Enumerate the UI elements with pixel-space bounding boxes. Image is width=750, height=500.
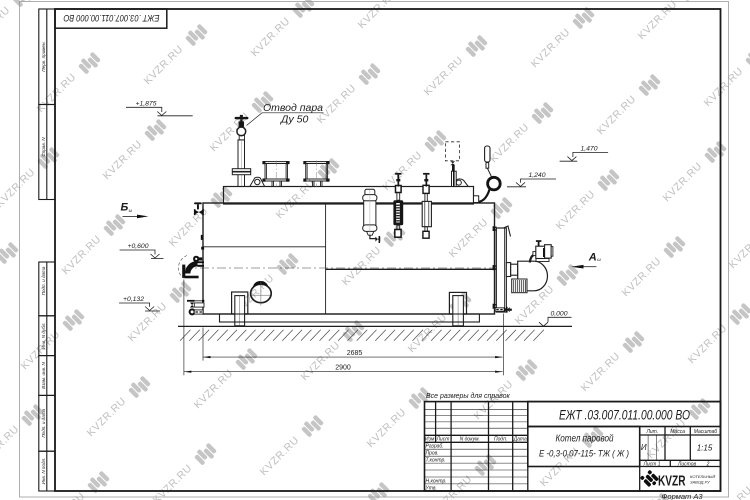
svg-text:Формат А3: Формат А3 bbox=[661, 492, 703, 500]
svg-text:Котел паровой: Котел паровой bbox=[556, 434, 614, 445]
svg-text:2: 2 bbox=[706, 461, 710, 467]
svg-text:Лист 1: Лист 1 bbox=[642, 461, 660, 467]
svg-text:ЕЖТ .03.007.011.00.000 ВО: ЕЖТ .03.007.011.00.000 ВО bbox=[64, 13, 160, 23]
svg-text:Подп.: Подп. bbox=[494, 437, 507, 443]
svg-text:Перв. примен.: Перв. примен. bbox=[41, 41, 46, 72]
svg-text:Лист: Лист bbox=[436, 437, 450, 443]
svg-text:Листов: Листов bbox=[677, 461, 697, 467]
svg-text:ω: ω bbox=[597, 257, 601, 262]
svg-text:1,240: 1,240 bbox=[528, 172, 545, 179]
svg-text:N докум.: N докум. bbox=[460, 437, 480, 443]
svg-text:А: А bbox=[588, 251, 597, 263]
svg-text:Дата: Дата bbox=[513, 437, 527, 443]
svg-text:KVZR.RU: KVZR.RU bbox=[0, 4, 13, 48]
svg-text:+0,600: +0,600 bbox=[128, 243, 149, 250]
svg-text:Б: Б bbox=[121, 202, 129, 214]
svg-text:Т.контр.: Т.контр. bbox=[426, 458, 446, 464]
svg-text:Пров.: Пров. bbox=[426, 451, 439, 457]
svg-text:Справ. N: Справ. N bbox=[41, 137, 46, 157]
svg-text:Масса: Масса bbox=[670, 429, 685, 435]
svg-text:+0,132: +0,132 bbox=[123, 296, 144, 303]
svg-text:+1,875: +1,875 bbox=[136, 100, 157, 107]
svg-text:Взам. инв. N: Взам. инв. N bbox=[41, 361, 46, 388]
svg-text:Е -0,3-0,07-115- ТЖ ( Ж ): Е -0,3-0,07-115- ТЖ ( Ж ) bbox=[539, 449, 629, 460]
svg-text:Инв. N подл.: Инв. N подл. bbox=[41, 458, 46, 485]
svg-text:Лит.: Лит. bbox=[645, 429, 658, 435]
svg-text:ω: ω bbox=[129, 208, 133, 213]
svg-text:0,000: 0,000 bbox=[550, 310, 567, 317]
svg-text:KVZR.RU: KVZR.RU bbox=[0, 166, 38, 210]
svg-text:1,470: 1,470 bbox=[580, 145, 597, 152]
svg-text:Изм: Изм bbox=[425, 437, 435, 443]
svg-text:Отвод пара: Отвод пара bbox=[263, 102, 323, 114]
svg-text:Подп. и дата: Подп. и дата bbox=[41, 408, 46, 437]
svg-text:Н.контр.: Н.контр. bbox=[426, 478, 447, 484]
svg-text:2685: 2685 bbox=[347, 350, 363, 357]
svg-text:KVZR.RU: KVZR.RU bbox=[0, 423, 22, 467]
svg-text:Инв. N дубл.: Инв. N дубл. bbox=[41, 322, 46, 349]
svg-text:ЕЖТ .03.007.011.00.000 ВО: ЕЖТ .03.007.011.00.000 ВО bbox=[559, 408, 690, 423]
svg-text:Масштаб: Масштаб bbox=[694, 429, 718, 435]
svg-text:Утв.: Утв. bbox=[426, 485, 437, 491]
svg-text:KVZR.RU: KVZR.RU bbox=[727, 227, 750, 271]
svg-text:Все размеры для справок: Все размеры для справок bbox=[426, 392, 511, 400]
svg-text:2900: 2900 bbox=[335, 365, 351, 372]
svg-text:Ду 50: Ду 50 bbox=[280, 114, 309, 126]
svg-text:ЗАВОД.РУ: ЗАВОД.РУ bbox=[690, 480, 710, 485]
svg-text:КОТЕЛЬНЫЙ: КОТЕЛЬНЫЙ bbox=[690, 474, 715, 479]
svg-text:KVZR: KVZR bbox=[658, 473, 686, 490]
svg-text:Разраб.: Разраб. bbox=[426, 444, 444, 450]
svg-text:И: И bbox=[641, 443, 647, 452]
svg-text:1:15: 1:15 bbox=[697, 444, 713, 453]
svg-text:Подп. и дата: Подп. и дата bbox=[41, 266, 46, 295]
